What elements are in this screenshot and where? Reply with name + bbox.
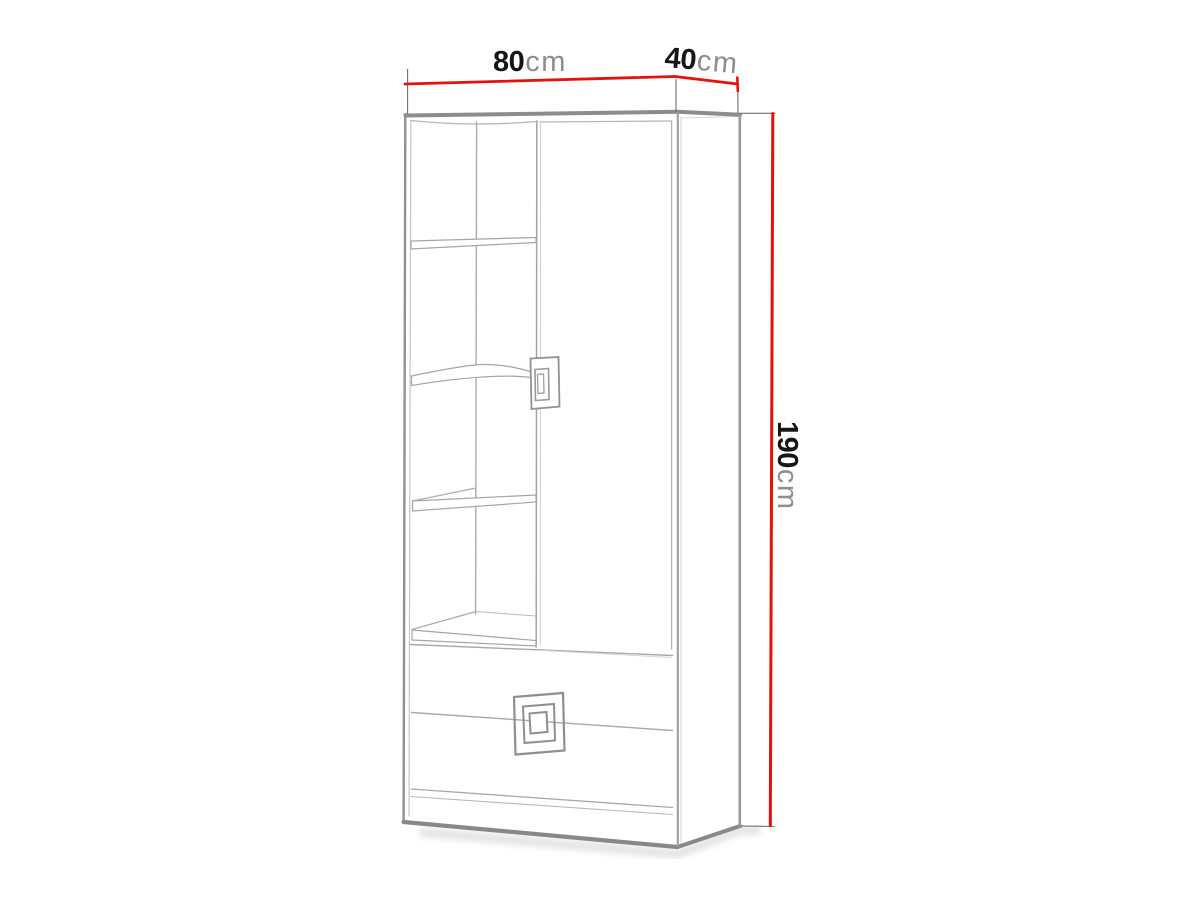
depth-dimension-label: 40cm <box>663 44 739 79</box>
door-handle <box>531 357 560 409</box>
height-dimension-label: 190cm <box>772 421 801 511</box>
furniture-dimension-diagram: 80cm 40cm 190cm <box>0 0 1200 900</box>
width-unit: cm <box>525 46 567 78</box>
door-handle-grip-slot <box>538 374 545 394</box>
depth-value: 40 <box>663 42 697 77</box>
height-unit: cm <box>771 469 803 511</box>
width-value: 80 <box>493 46 524 78</box>
height-value: 190 <box>771 421 803 468</box>
wardrobe-line-drawing <box>0 0 1200 900</box>
left-edge <box>404 114 406 823</box>
depth-unit: cm <box>696 45 740 81</box>
depth-dimension-end-tick <box>737 78 738 92</box>
width-dimension-label: 80cm <box>493 48 567 77</box>
wardrobe-body <box>404 111 741 848</box>
drawer-handle-inner-square <box>530 712 548 734</box>
side-panel <box>678 111 740 848</box>
